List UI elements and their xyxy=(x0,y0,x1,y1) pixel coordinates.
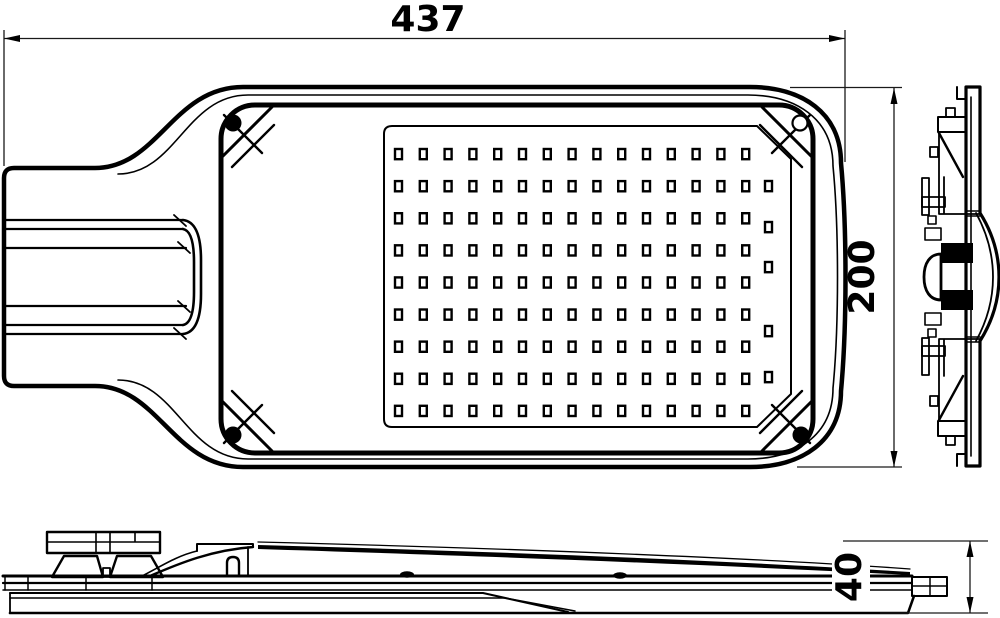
led-chip xyxy=(469,374,476,384)
led-chip xyxy=(742,181,749,191)
led-chip xyxy=(742,342,749,352)
led-chip xyxy=(593,406,600,416)
led-chip xyxy=(395,374,402,384)
led-chip xyxy=(618,310,625,320)
led-chip xyxy=(445,149,452,159)
led-chip xyxy=(544,181,551,191)
led-chip xyxy=(494,213,501,223)
pole-socket-cap xyxy=(183,220,201,334)
clamp-pad xyxy=(941,243,973,263)
led-chip xyxy=(593,181,600,191)
led-chip xyxy=(469,245,476,255)
led-chip xyxy=(395,213,402,223)
led-chip xyxy=(569,374,576,384)
led-chip xyxy=(643,245,650,255)
lens-top-band xyxy=(258,545,910,575)
led-chip xyxy=(593,310,600,320)
led-chip xyxy=(742,245,749,255)
led-chip xyxy=(519,149,526,159)
arrowhead-top xyxy=(891,88,898,104)
led-chip xyxy=(395,342,402,352)
led-chip xyxy=(395,406,402,416)
led-chip xyxy=(544,342,551,352)
led-chip xyxy=(494,245,501,255)
led-chip xyxy=(668,310,675,320)
pole-clamp-details xyxy=(47,532,160,553)
base-wedge-top xyxy=(10,593,568,612)
led-chip xyxy=(469,342,476,352)
led-chip xyxy=(569,213,576,223)
led-chip xyxy=(519,406,526,416)
led-chip xyxy=(420,310,427,320)
led-chip xyxy=(693,245,700,255)
led-chip xyxy=(593,213,600,223)
led-chip xyxy=(569,342,576,352)
led-chip xyxy=(618,149,625,159)
dimension-width-437: 437 xyxy=(4,0,845,166)
led-chip xyxy=(643,277,650,287)
plan-view xyxy=(4,87,846,467)
flange-horizontal xyxy=(922,197,945,207)
led-chip xyxy=(544,245,551,255)
led-chip xyxy=(717,406,724,416)
led-chip xyxy=(618,181,625,191)
led-chip xyxy=(618,213,625,223)
led-chip xyxy=(445,342,452,352)
extension-lines xyxy=(4,30,845,166)
screw-hole xyxy=(793,116,808,131)
led-chip xyxy=(618,245,625,255)
led-chip xyxy=(668,245,675,255)
led-chip xyxy=(717,342,724,352)
led-chip xyxy=(618,374,625,384)
led-chip xyxy=(420,149,427,159)
screw-head-bump xyxy=(400,571,414,577)
pole-socket-lines xyxy=(4,220,186,334)
corner-screw-top-left xyxy=(221,107,274,167)
led-chip xyxy=(643,181,650,191)
led-chip xyxy=(765,262,772,272)
led-chip xyxy=(445,310,452,320)
mid-tab xyxy=(925,228,941,240)
led-chip xyxy=(544,406,551,416)
led-chip xyxy=(569,277,576,287)
led-chip xyxy=(765,181,772,191)
led-chip xyxy=(593,342,600,352)
led-chip xyxy=(519,245,526,255)
led-chip xyxy=(420,374,427,384)
led-chip xyxy=(469,213,476,223)
led-chip xyxy=(668,149,675,159)
led-chip xyxy=(544,310,551,320)
led-chip xyxy=(494,181,501,191)
led-chip xyxy=(742,406,749,416)
led-chip xyxy=(717,149,724,159)
led-chip xyxy=(469,310,476,320)
led-chip xyxy=(693,213,700,223)
led-chip xyxy=(668,406,675,416)
led-chip xyxy=(494,374,501,384)
bracket-block xyxy=(938,117,966,132)
led-chip xyxy=(519,213,526,223)
led-chip xyxy=(717,245,724,255)
led-chip xyxy=(717,181,724,191)
led-chip xyxy=(420,277,427,287)
led-chip xyxy=(569,406,576,416)
led-chip xyxy=(395,277,402,287)
screw-head xyxy=(225,115,242,132)
cap-square xyxy=(946,108,955,117)
led-chip xyxy=(494,149,501,159)
led-chip xyxy=(544,213,551,223)
led-chip xyxy=(519,181,526,191)
led-chip xyxy=(693,374,700,384)
led-chip xyxy=(742,149,749,159)
led-chip xyxy=(668,181,675,191)
screw-head xyxy=(225,427,242,444)
screw-post xyxy=(227,557,239,576)
screw-head-bump xyxy=(613,572,627,578)
led-chip xyxy=(717,213,724,223)
led-chip xyxy=(643,374,650,384)
led-chip xyxy=(395,310,402,320)
arm-transition-curve-1 xyxy=(150,547,253,576)
end-profile-view xyxy=(922,87,999,466)
led-chip xyxy=(643,149,650,159)
led-chip xyxy=(445,181,452,191)
lens-top-line xyxy=(258,542,910,569)
led-chip xyxy=(765,372,772,382)
base-wedge-mid xyxy=(10,598,575,611)
led-chip xyxy=(544,277,551,287)
led-chip xyxy=(420,245,427,255)
bracket-bump xyxy=(930,147,938,157)
led-chip xyxy=(569,181,576,191)
led-chip xyxy=(593,374,600,384)
led-chip xyxy=(445,277,452,287)
led-chip xyxy=(618,342,625,352)
led-chip xyxy=(618,406,625,416)
led-chip xyxy=(643,406,650,416)
led-chip xyxy=(469,149,476,159)
led-chip xyxy=(668,277,675,287)
led-chip xyxy=(445,245,452,255)
led-chip xyxy=(742,213,749,223)
corner-screw-bottom-left xyxy=(221,391,274,451)
led-chip xyxy=(544,374,551,384)
u-channel xyxy=(924,254,941,300)
end-cap-divisions xyxy=(912,577,947,596)
led-chip xyxy=(519,374,526,384)
dimension-height-200: 200 xyxy=(790,88,902,468)
led-chip xyxy=(717,310,724,320)
led-chip xyxy=(593,277,600,287)
led-chip xyxy=(693,310,700,320)
led-chip xyxy=(395,181,402,191)
led-chip xyxy=(717,277,724,287)
led-chip xyxy=(395,149,402,159)
corner-screw-bottom-right xyxy=(760,391,813,451)
led-chip xyxy=(420,406,427,416)
led-chip xyxy=(469,277,476,287)
led-chip xyxy=(494,310,501,320)
led-chip xyxy=(717,374,724,384)
led-chip xyxy=(469,181,476,191)
led-chip xyxy=(693,149,700,159)
led-chip xyxy=(519,310,526,320)
dimension-height-value: 200 xyxy=(842,239,883,314)
led-chip xyxy=(742,374,749,384)
led-chip xyxy=(569,310,576,320)
arrowhead-top xyxy=(967,541,974,557)
dimension-thickness-value: 40 xyxy=(829,552,870,602)
led-chip xyxy=(395,245,402,255)
led-chip xyxy=(668,213,675,223)
led-chip xyxy=(569,149,576,159)
mid-pin xyxy=(928,216,936,224)
led-chip xyxy=(693,181,700,191)
led-chip xyxy=(618,277,625,287)
led-chip xyxy=(765,222,772,232)
pole-socket-cap-ticks xyxy=(174,215,190,339)
led-chip xyxy=(519,277,526,287)
led-chip xyxy=(593,149,600,159)
arrowhead-right xyxy=(829,35,845,42)
side-elevation-view xyxy=(3,532,947,613)
led-chip xyxy=(420,342,427,352)
led-chip xyxy=(693,277,700,287)
led-chip xyxy=(693,342,700,352)
arrowhead-bottom xyxy=(967,597,974,613)
led-chip xyxy=(445,213,452,223)
bracket-diagonal xyxy=(939,133,963,177)
drawing-svg: 437 200 40 xyxy=(0,0,1000,618)
led-chip xyxy=(420,213,427,223)
led-chip xyxy=(765,326,772,336)
led-chip xyxy=(643,213,650,223)
screw-head xyxy=(793,427,810,444)
technical-drawing-canvas: 437 200 40 xyxy=(0,0,1000,618)
led-chip xyxy=(445,374,452,384)
led-chip xyxy=(668,342,675,352)
arrowhead-left xyxy=(4,35,20,42)
led-chip xyxy=(494,342,501,352)
led-array xyxy=(395,149,772,416)
led-chip xyxy=(593,245,600,255)
led-chip xyxy=(569,245,576,255)
led-chip xyxy=(742,277,749,287)
led-chip xyxy=(544,149,551,159)
led-chip xyxy=(494,277,501,287)
arrowhead-bottom xyxy=(891,451,898,467)
led-chip xyxy=(494,406,501,416)
led-chip xyxy=(519,342,526,352)
dimension-width-value: 437 xyxy=(390,0,465,40)
led-chip xyxy=(445,406,452,416)
led-chip xyxy=(469,406,476,416)
led-chip xyxy=(643,310,650,320)
led-chip xyxy=(668,374,675,384)
led-chip xyxy=(742,310,749,320)
led-chip xyxy=(420,181,427,191)
arm-transition-curve-2 xyxy=(142,551,197,576)
led-chip xyxy=(693,406,700,416)
led-chip xyxy=(643,342,650,352)
